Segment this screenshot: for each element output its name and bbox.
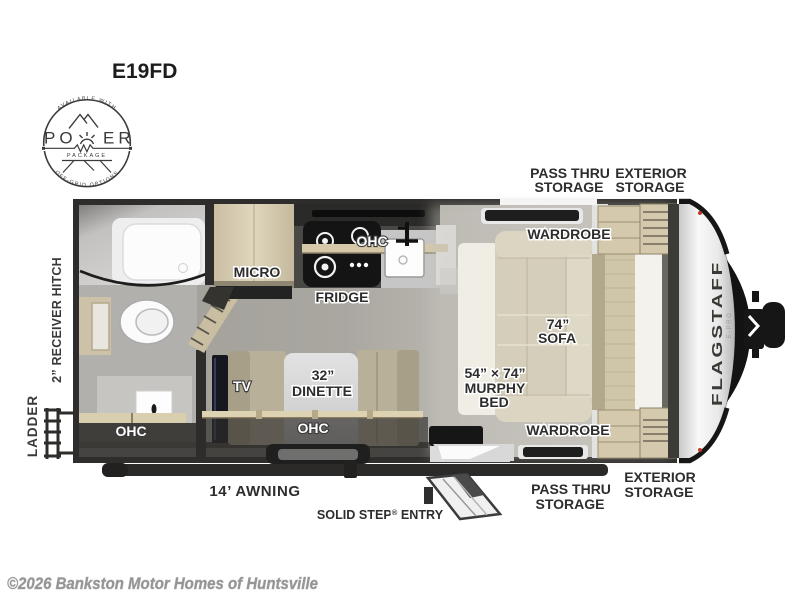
svg-text:STORAGE: STORAGE	[616, 179, 685, 195]
svg-text:WARDROBE: WARDROBE	[526, 422, 609, 438]
svg-text:TV: TV	[233, 378, 252, 394]
svg-text:DINETTE: DINETTE	[292, 383, 352, 399]
svg-text:ER: ER	[103, 129, 135, 148]
svg-text:PASS THRU: PASS THRU	[531, 481, 611, 497]
svg-text:SOLID STEP® ENTRY: SOLID STEP® ENTRY	[317, 508, 444, 522]
svg-text:FRIDGE: FRIDGE	[316, 289, 369, 305]
svg-text:E-PRO: E-PRO	[727, 312, 733, 339]
svg-text:PO: PO	[44, 129, 77, 148]
svg-text:PACKAGE: PACKAGE	[67, 153, 107, 159]
svg-text:SOFA: SOFA	[538, 330, 576, 346]
svg-text:2” RECEIVER HITCH: 2” RECEIVER HITCH	[50, 257, 64, 383]
svg-text:STORAGE: STORAGE	[536, 496, 605, 512]
svg-text:LADDER: LADDER	[25, 395, 40, 457]
svg-text:EXTERIOR: EXTERIOR	[624, 469, 696, 485]
svg-text:54” × 74”: 54” × 74”	[464, 365, 525, 381]
svg-text:STORAGE: STORAGE	[535, 179, 604, 195]
svg-text:STORAGE: STORAGE	[625, 484, 694, 500]
svg-text:WARDROBE: WARDROBE	[527, 226, 610, 242]
svg-text:14’ AWNING: 14’ AWNING	[209, 483, 300, 500]
svg-text:MICRO: MICRO	[234, 264, 281, 280]
svg-text:©2026 Bankston Motor Homes of: ©2026 Bankston Motor Homes of Huntsville	[7, 575, 318, 593]
svg-text:E19FD: E19FD	[112, 60, 177, 83]
svg-text:FLAGSTAFF: FLAGSTAFF	[709, 260, 726, 406]
svg-text:OHC: OHC	[115, 423, 146, 439]
svg-text:OHC: OHC	[297, 420, 328, 436]
svg-text:OHC: OHC	[356, 233, 387, 249]
svg-text:32”: 32”	[312, 367, 335, 383]
svg-text:BED: BED	[479, 394, 509, 410]
